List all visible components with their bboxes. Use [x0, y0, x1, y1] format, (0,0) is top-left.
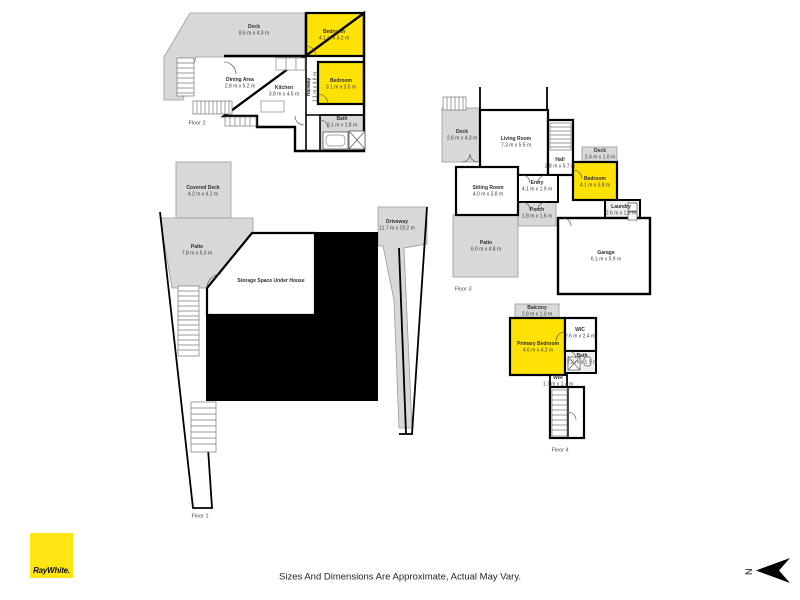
floorplan-floor2 — [164, 13, 365, 151]
floorplan-floor4 — [510, 304, 596, 438]
floor-label-4: Floor 4 — [551, 447, 568, 453]
deck-right-area — [582, 147, 617, 162]
floorplan-floor1 — [160, 162, 427, 508]
disclaimer-text: Sizes And Dimensions Are Approximate, Ac… — [279, 572, 521, 583]
deck-left-area — [442, 108, 480, 162]
floor-label-1: Floor 1 — [191, 513, 208, 519]
bedroom-2-area — [318, 62, 364, 104]
shower-icon — [568, 357, 580, 370]
floorplan-drawing: N — [0, 0, 800, 600]
stairs-icon — [443, 97, 466, 110]
patio-area — [453, 215, 518, 277]
north-label: N — [744, 569, 754, 576]
floorplan-canvas: N Deck8.6 m x 4.3 m Bedroom4.1 m x 3.2 m… — [0, 0, 800, 600]
bathtub-icon — [323, 132, 348, 149]
entry-area — [518, 175, 558, 202]
wic-area — [565, 318, 596, 351]
toilet-icon — [584, 357, 591, 366]
ray-white-logo-text: RayWhite. — [33, 566, 70, 575]
bedroom-area — [573, 162, 617, 200]
living-room-area — [480, 110, 548, 175]
garage-area — [558, 218, 650, 294]
floorplan-floor3 — [442, 87, 650, 294]
wir-area — [550, 375, 567, 387]
covered-deck-area — [176, 162, 231, 218]
north-arrow-icon: N — [744, 558, 790, 583]
floor-label-2: Floor 2 — [188, 120, 205, 126]
sitting-room-area — [456, 167, 518, 215]
shower-icon — [349, 131, 365, 149]
ray-white-logo: RayWhite. — [30, 533, 73, 578]
floor-label-3: Floor 3 — [454, 286, 471, 292]
stairs-icon — [552, 390, 567, 436]
balcony-area — [515, 304, 559, 318]
stairs-icon — [550, 123, 571, 150]
primary-bedroom-area — [510, 318, 565, 375]
porch-area — [518, 202, 556, 226]
